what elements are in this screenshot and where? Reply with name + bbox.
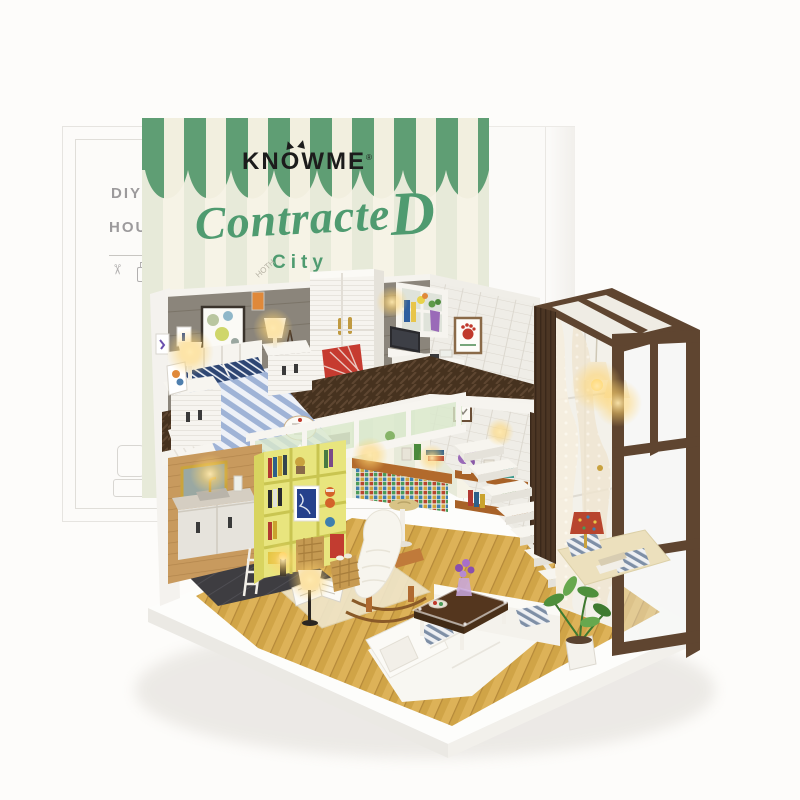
wardrobe-handle — [348, 317, 352, 334]
plate — [429, 600, 447, 608]
glass-bottle — [234, 476, 242, 491]
dollhouse-model — [0, 0, 800, 800]
product-photo: DIY HOUSE ✂ KNOWME® — [0, 0, 800, 800]
red-box — [330, 534, 344, 558]
